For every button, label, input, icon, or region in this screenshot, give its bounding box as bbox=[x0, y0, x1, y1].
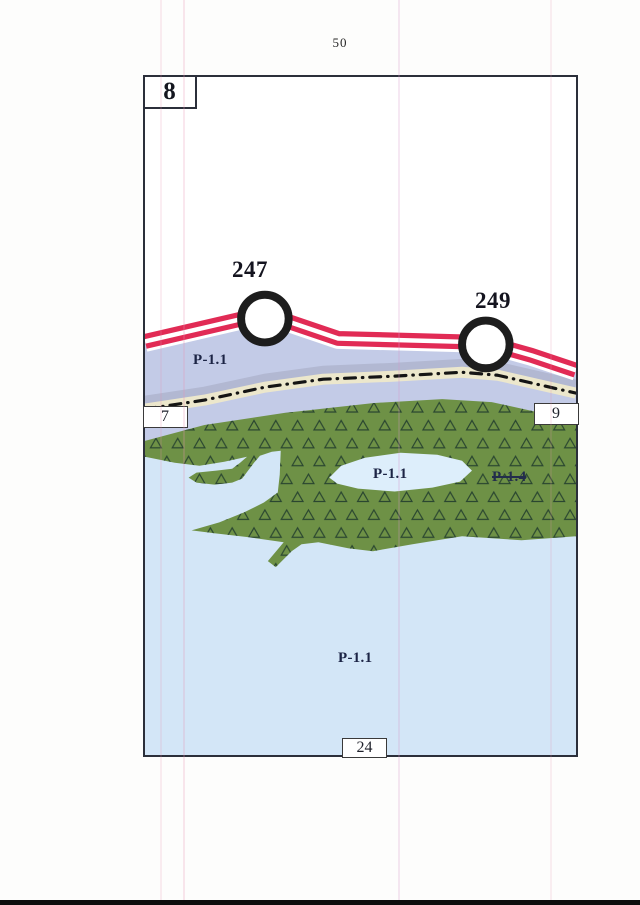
zone-label-water: P-1.1 bbox=[338, 650, 372, 667]
marker-label-247: 247 bbox=[218, 257, 282, 283]
adjacent-sheet-ref-right: 9 bbox=[534, 403, 579, 425]
adjacent-sheet-ref-bottom: 24 bbox=[342, 738, 387, 758]
adjacent-sheet-ref-left: 7 bbox=[143, 406, 188, 428]
map-sheet-frame: 8 7 9 24 247 249 P-1.1 P-1.1 P-1.4 P-1.1 bbox=[143, 75, 578, 757]
sheet-number-box: 8 bbox=[143, 75, 197, 109]
marker-circle-247 bbox=[241, 295, 289, 343]
zone-label-band: P-1.1 bbox=[193, 352, 227, 369]
scanned-document-page: 50 bbox=[0, 0, 640, 905]
scan-bottom-edge bbox=[0, 900, 640, 905]
adjacent-sheet-ref-left-label: 7 bbox=[161, 408, 169, 426]
adjacent-sheet-ref-bottom-label: 24 bbox=[357, 739, 373, 757]
marker-circle-249 bbox=[462, 321, 510, 369]
page-number: 50 bbox=[280, 35, 400, 51]
marker-label-249: 249 bbox=[461, 288, 525, 314]
adjacent-sheet-ref-right-label: 9 bbox=[552, 405, 560, 423]
sheet-number: 8 bbox=[163, 78, 176, 106]
zone-label-struck-out: P-1.4 bbox=[492, 469, 526, 486]
zone-label-island: P-1.1 bbox=[373, 466, 407, 483]
